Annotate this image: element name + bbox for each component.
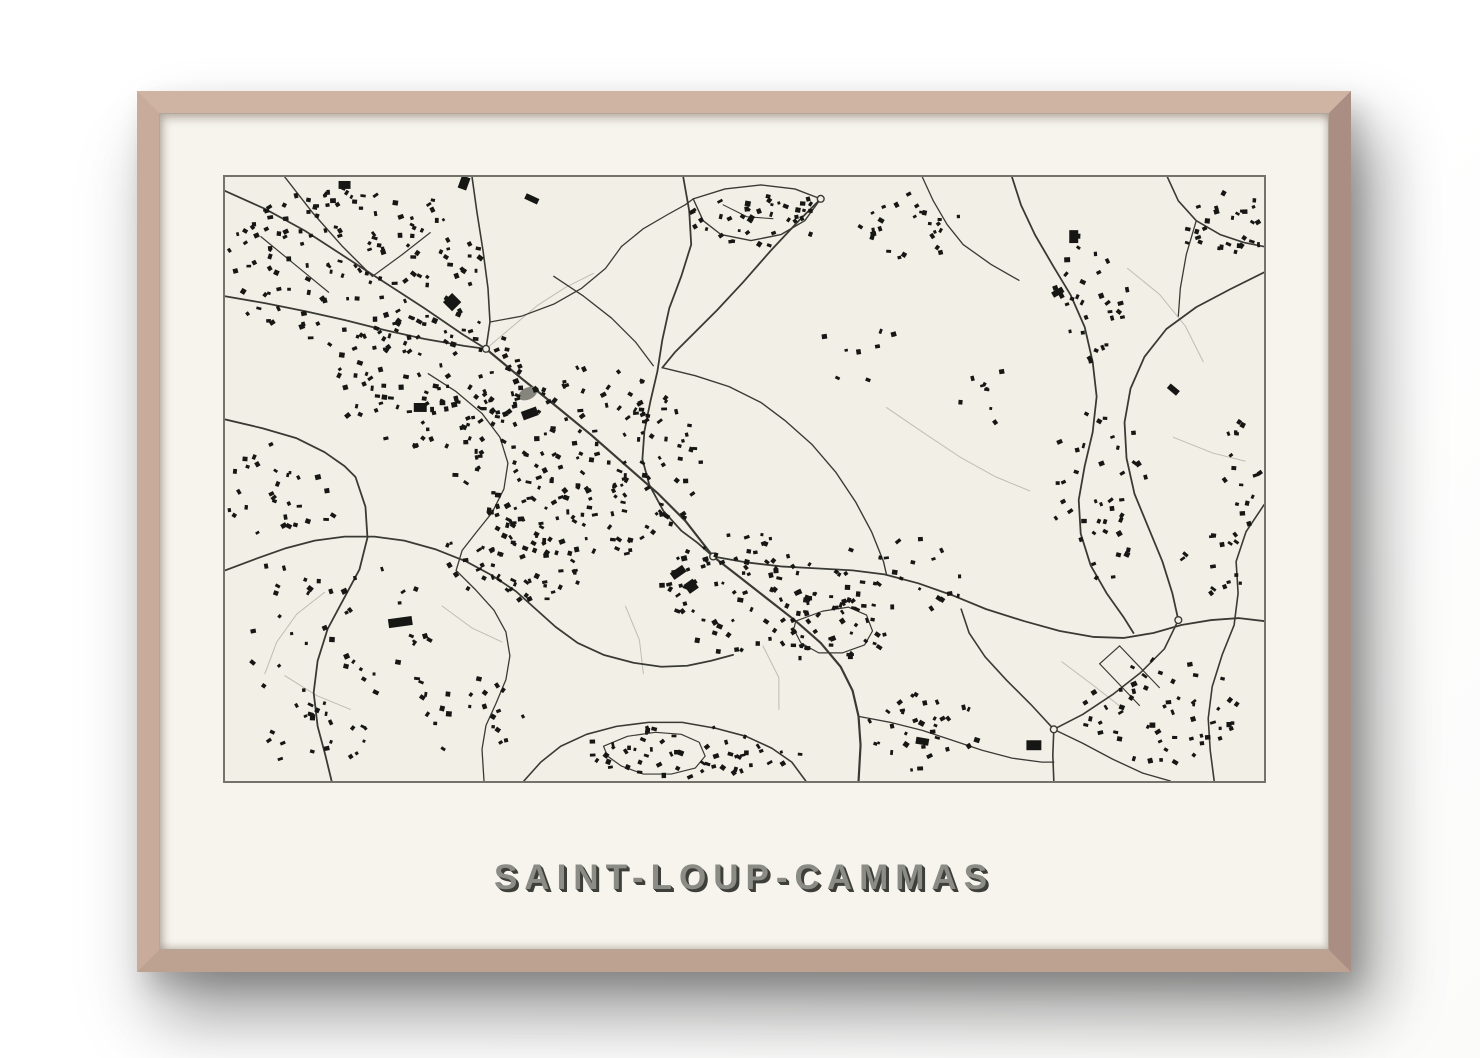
map-panel: [223, 175, 1266, 783]
wall-background: SAINT-LOUP-CAMMAS: [0, 0, 1480, 1058]
picture-frame: SAINT-LOUP-CAMMAS: [137, 91, 1351, 972]
map-svg: [225, 177, 1264, 781]
poster-matte: SAINT-LOUP-CAMMAS: [159, 113, 1329, 950]
poster-title: SAINT-LOUP-CAMMAS: [160, 858, 1328, 898]
